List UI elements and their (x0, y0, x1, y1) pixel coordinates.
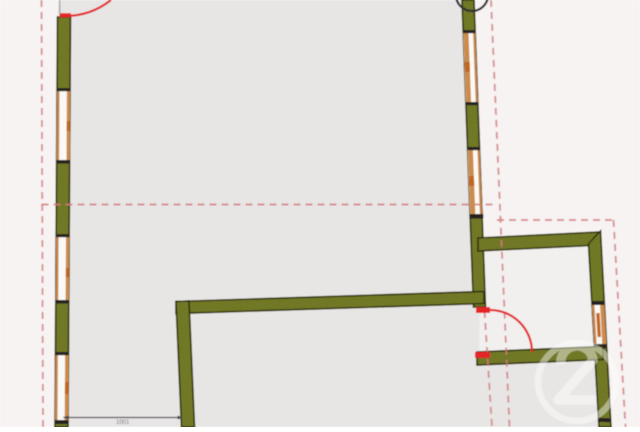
svg-text:1001: 1001 (116, 420, 130, 426)
